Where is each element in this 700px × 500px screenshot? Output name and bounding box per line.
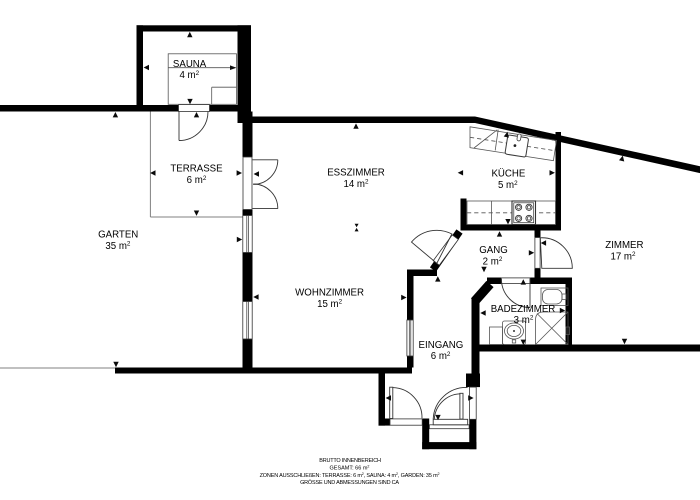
svg-text:ESSZIMMER: ESSZIMMER [327, 167, 385, 178]
svg-text:WOHNZIMMER: WOHNZIMMER [295, 288, 364, 299]
svg-text:GESAMT: 66 m2: GESAMT: 66 m2 [330, 465, 370, 472]
svg-text:ZIMMER: ZIMMER [605, 240, 643, 251]
svg-text:BRUTTO INNENBEREICH: BRUTTO INNENBEREICH [319, 458, 381, 464]
svg-text:EINGANG: EINGANG [419, 340, 464, 351]
svg-text:BADEZIMMER: BADEZIMMER [491, 304, 556, 315]
svg-text:SAUNA: SAUNA [173, 59, 207, 70]
svg-text:ZONEN AUSSCHLIEßEN: TERRASSE:: ZONEN AUSSCHLIEßEN: TERRASSE: 6 m2, SAUN… [260, 472, 440, 479]
svg-text:GANG: GANG [479, 245, 508, 256]
svg-text:KÜCHE: KÜCHE [491, 169, 525, 180]
svg-text:GRÖSSE UND ABMESSUNGEN SIND CA: GRÖSSE UND ABMESSUNGEN SIND CA [300, 479, 399, 486]
svg-text:GARTEN: GARTEN [98, 230, 138, 241]
svg-text:TERRASSE: TERRASSE [170, 164, 223, 175]
